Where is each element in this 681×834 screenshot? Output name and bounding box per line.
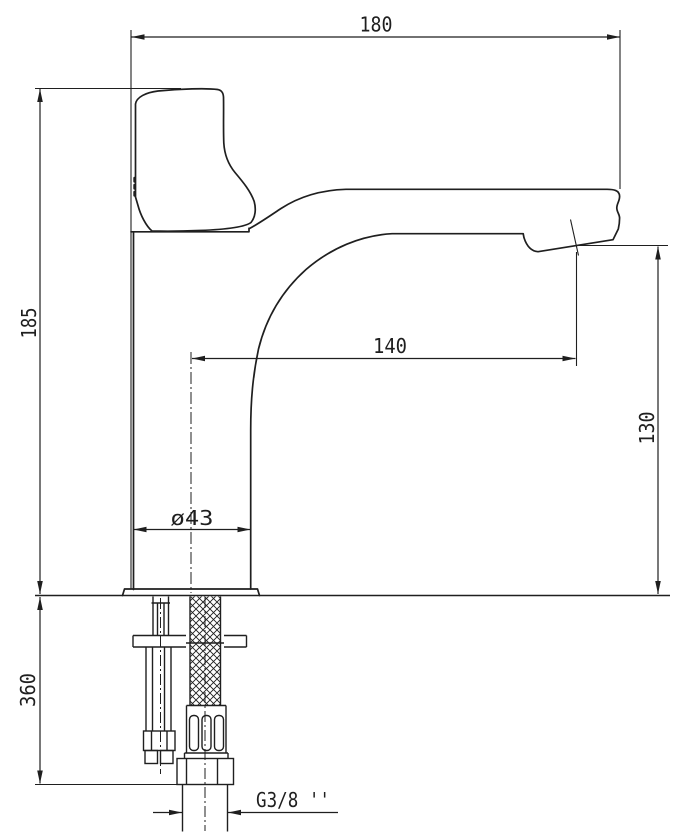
arrowhead	[563, 356, 576, 362]
dim-label-outlet-height: 130	[635, 412, 659, 445]
arrowhead	[169, 810, 182, 816]
collar-slot	[190, 716, 199, 751]
arrowhead	[132, 34, 145, 40]
arrowhead	[37, 89, 43, 102]
collar-slot	[202, 716, 211, 751]
arrowhead	[238, 527, 251, 533]
arrowhead	[37, 597, 43, 610]
spout-outline	[250, 189, 620, 589]
aerator-tick	[571, 220, 579, 256]
arrowhead	[37, 771, 43, 784]
dim-label-spout-reach: 140	[373, 334, 407, 358]
below-deck-assembly	[133, 597, 247, 832]
dimension-body-height	[35, 89, 181, 595]
dim-label-below-deck-length: 360	[16, 673, 40, 707]
dim-label-thread-size: G3/8 ''	[256, 788, 330, 812]
arrowhead	[655, 581, 661, 594]
collar-slot	[215, 716, 224, 751]
hose-collar	[185, 706, 229, 759]
stud-end-tabs	[145, 751, 173, 764]
mounting-nut	[144, 731, 176, 751]
dim-label-base-diameter: ø43	[171, 506, 214, 530]
dim-label-overall-length: 180	[360, 13, 393, 37]
handle-outline	[136, 89, 256, 231]
arrowhead	[192, 356, 205, 362]
arrowhead	[134, 527, 147, 533]
arrowhead	[655, 247, 661, 260]
arrowhead	[37, 581, 43, 594]
dim-label-body-height: 185	[17, 308, 41, 339]
faucet-dimension-drawing: 180 185 140 130 ø43 360 G3/8 ''	[0, 0, 681, 834]
arrowhead	[607, 34, 620, 40]
arrowhead	[228, 810, 241, 816]
mounting-stud-lower	[146, 647, 171, 731]
